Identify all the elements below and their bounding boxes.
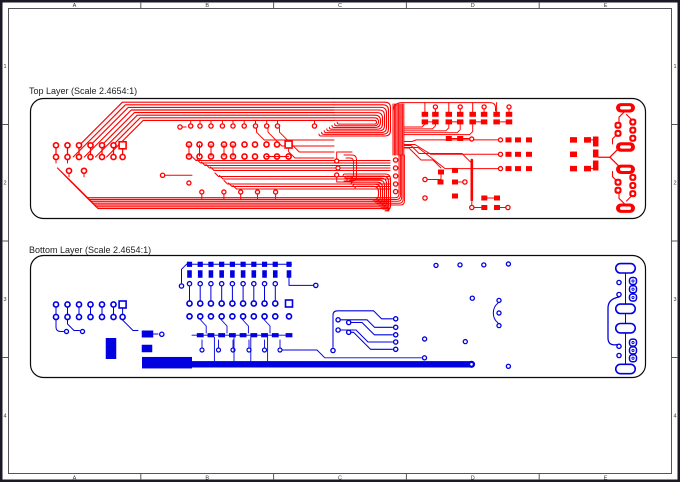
svg-text:E: E bbox=[604, 476, 608, 482]
svg-text:C: C bbox=[338, 476, 342, 482]
svg-text:4: 4 bbox=[673, 413, 676, 419]
svg-text:C: C bbox=[338, 3, 342, 9]
svg-text:Top Layer (Scale 2.4654:1): Top Layer (Scale 2.4654:1) bbox=[29, 86, 137, 96]
svg-text:B: B bbox=[205, 3, 209, 9]
svg-text:E: E bbox=[604, 3, 608, 9]
svg-text:1: 1 bbox=[3, 64, 6, 70]
svg-text:4: 4 bbox=[3, 413, 6, 419]
svg-text:D: D bbox=[471, 476, 475, 482]
svg-text:Bottom Layer (Scale 2.4654:1): Bottom Layer (Scale 2.4654:1) bbox=[29, 245, 151, 255]
svg-text:3: 3 bbox=[3, 297, 6, 303]
svg-text:B: B bbox=[205, 476, 209, 482]
svg-text:2: 2 bbox=[673, 181, 676, 187]
svg-text:D: D bbox=[471, 3, 475, 9]
svg-text:2: 2 bbox=[3, 181, 6, 187]
svg-text:A: A bbox=[73, 476, 77, 482]
svg-text:3: 3 bbox=[673, 297, 676, 303]
svg-text:1: 1 bbox=[673, 64, 676, 70]
svg-text:A: A bbox=[73, 3, 77, 9]
